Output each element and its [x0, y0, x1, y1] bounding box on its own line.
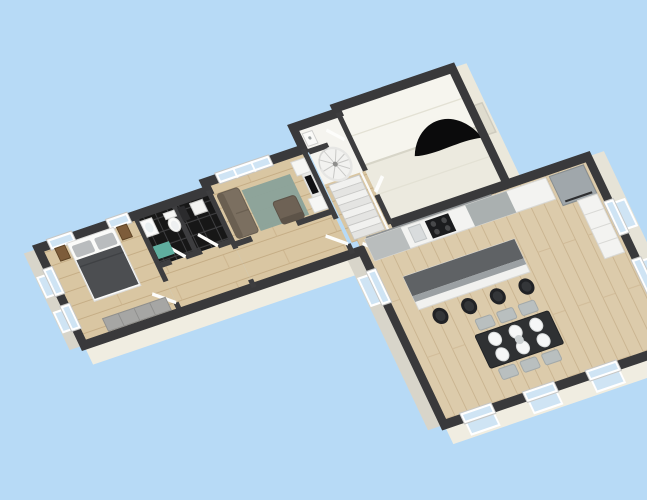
floorplan-canvas[interactable]: [0, 0, 647, 497]
floorplan-viewport[interactable]: [0, 0, 647, 500]
